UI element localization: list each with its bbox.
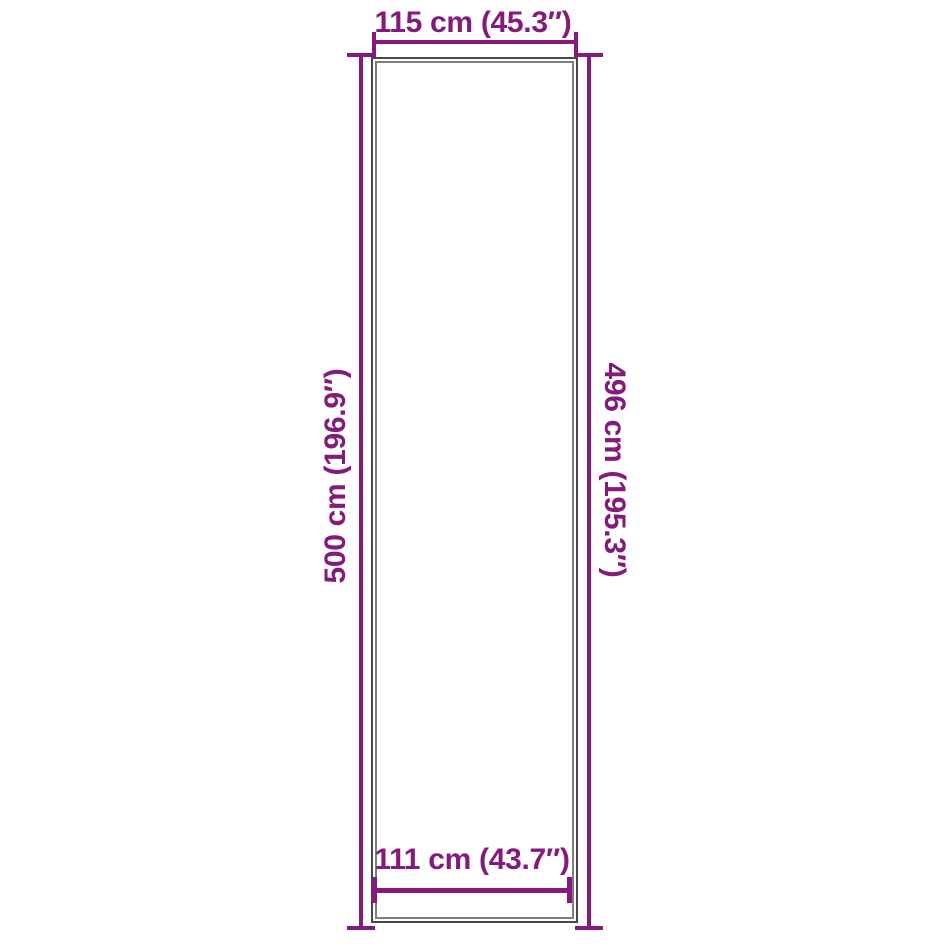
product-outline xyxy=(371,57,578,923)
dimension-diagram: 115 cm (45.3″) 500 cm (196.9″) 496 cm (1… xyxy=(0,0,947,947)
bottom-inner-width-dimension-line xyxy=(373,888,572,893)
left-height-dimension-top-tick xyxy=(347,53,375,57)
left-height-dimension-label: 500 cm (196.9″) xyxy=(318,346,354,606)
right-height-dimension-top-tick xyxy=(575,53,603,57)
right-height-dimension-label: 496 cm (195.3″) xyxy=(596,340,632,600)
left-height-dimension-bottom-tick xyxy=(347,926,375,930)
top-width-dimension-label: 115 cm (45.3″) xyxy=(273,6,673,40)
left-height-dimension-line xyxy=(359,55,363,929)
right-height-dimension-line xyxy=(587,55,591,929)
product-outline-inner xyxy=(375,61,574,919)
bottom-inner-width-dimension-right-tick xyxy=(567,877,572,903)
bottom-inner-width-dimension-left-tick xyxy=(372,877,377,903)
top-width-dimension-line xyxy=(372,40,578,44)
right-height-dimension-bottom-tick xyxy=(575,926,603,930)
bottom-inner-width-dimension-label: 111 cm (43.7″) xyxy=(272,843,672,877)
